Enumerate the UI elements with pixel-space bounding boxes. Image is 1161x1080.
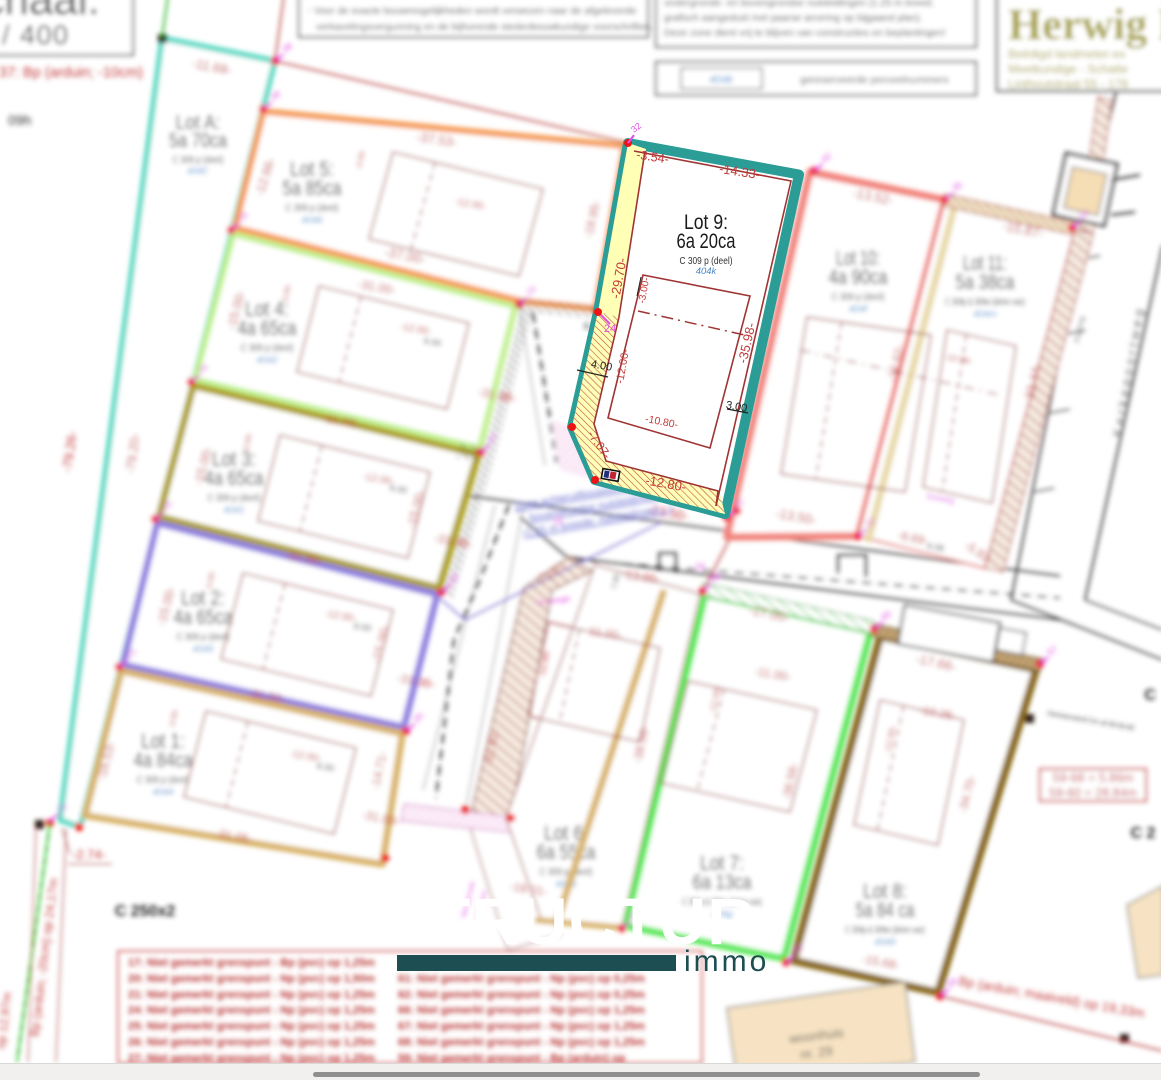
svg-text:37: Bp (arduin; -10cm): 37: Bp (arduin; -10cm) (0, 65, 143, 81)
svg-text:404k: 404k (696, 266, 718, 277)
svg-text:C 309 p (deel): C 309 p (deel) (286, 202, 339, 214)
svg-text:4042: 4042 (256, 355, 278, 366)
svg-text:4045: 4045 (192, 644, 214, 655)
svg-text:404k: 404k (709, 74, 733, 86)
svg-text:5a 84 ca: 5a 84 ca (856, 898, 915, 922)
svg-text:4a 65ca: 4a 65ca (205, 466, 264, 490)
svg-text:61: Niet gemerkt grenspunt - N: 61: Niet gemerkt grenspunt - Np (pvc) op… (398, 973, 645, 985)
svg-text:68: Niet gemerkt grenspunt - N: 68: Niet gemerkt grenspunt - Np (pvc) op… (398, 1037, 645, 1049)
svg-text:Linthoutstraat 55 - 178: Linthoutstraat 55 - 178 (1008, 77, 1128, 91)
svg-text:6a 20ca: 6a 20ca (677, 229, 736, 253)
svg-text:09h: 09h (8, 112, 31, 128)
svg-text:C 2: C 2 (1131, 825, 1156, 842)
svg-text:gereserveerde perceelnummers: gereserveerde perceelnummers (800, 74, 949, 86)
svg-text:24: 24 (604, 323, 616, 335)
svg-text:Deze zone dient vrij te blijve: Deze zone dient vrij te blijven van cons… (664, 28, 946, 39)
svg-text:C 309 p (deel): C 309 p (deel) (540, 866, 593, 878)
svg-text:4049: 4049 (874, 937, 896, 948)
svg-text:4040: 4040 (187, 166, 207, 176)
svg-text:C 309 p (deel): C 309 p (deel) (173, 155, 224, 166)
svg-text:immo: immo (684, 945, 769, 978)
svg-text:5a 70ca: 5a 70ca (169, 130, 228, 152)
svg-text:4a 90ca: 4a 90ca (829, 265, 888, 289)
svg-text:4044: 4044 (152, 787, 173, 798)
svg-text:- Voor de exacte bouwmogelijkh: - Voor de exacte bouwmogelijkheden wordt… (308, 6, 637, 17)
svg-text:5a 85ca: 5a 85ca (283, 176, 342, 200)
svg-text:62: Niet gemerkt grenspunt - N: 62: Niet gemerkt grenspunt - Np (pvc) op… (398, 989, 645, 1001)
svg-text:4041: 4041 (223, 505, 244, 516)
svg-text:59: Niet gemerkt grenspunt - B: 59: Niet gemerkt grenspunt - Bp (arduin)… (398, 1052, 626, 1064)
svg-text:21: Niet gemerkt grenspunt - N: 21: Niet gemerkt grenspunt - Np (pvc) op… (128, 989, 375, 1001)
svg-text:59-60 = 28.84m: 59-60 = 28.84m (1049, 786, 1137, 800)
svg-text:4046: 4046 (301, 215, 323, 226)
svg-text:4a 65ca: 4a 65ca (238, 316, 297, 340)
svg-text:C: C (1144, 687, 1156, 704)
svg-text:20: Niet gemerkt grenspunt - N: 20: Niet gemerkt grenspunt - Np (pvc) op… (128, 973, 375, 985)
svg-text:Herwig F: Herwig F (1008, 0, 1161, 49)
svg-text:C 309p & 309w (delen van): C 309p & 309w (delen van) (945, 296, 1025, 308)
svg-text:C 309p & 309w (delen van): C 309p & 309w (delen van) (845, 924, 925, 936)
svg-text:23: 23 (553, 516, 563, 526)
svg-text:Meetkundige - Schatte: Meetkundige - Schatte (1008, 62, 1128, 76)
svg-text:ondergronde- en bovengrondse n: ondergronde- en bovengrondse nutsleiding… (664, 0, 934, 9)
svg-text:26: Niet gemerkt grenspunt - N: 26: Niet gemerkt grenspunt - Np (pvc) op… (128, 1037, 375, 1049)
svg-text:C 309 p (deel): C 309 p (deel) (208, 492, 261, 504)
svg-text:C 250x2: C 250x2 (115, 903, 176, 920)
svg-text:17: Niet gemerkt grenspunt - B: 17: Niet gemerkt grenspunt - Bp (pvc) op… (128, 957, 375, 969)
svg-text:Beëdigd landmeter-ex: Beëdigd landmeter-ex (1008, 47, 1125, 61)
svg-text:24: Niet gemerkt grenspunt - N: 24: Niet gemerkt grenspunt - Np (pvc) op… (128, 1005, 375, 1017)
svg-text:66: Niet gemerkt grenspunt - N: 66: Niet gemerkt grenspunt - Np (pvc) op… (398, 1005, 645, 1017)
svg-text:59-68 = 5.86m: 59-68 = 5.86m (1053, 771, 1134, 785)
svg-text:404f: 404f (849, 304, 869, 315)
svg-text:6a 55ca: 6a 55ca (537, 840, 596, 864)
svg-text:grafisch aangeduid met paarse: grafisch aangeduid met paarse arcering o… (664, 13, 923, 24)
svg-text:C 309 p (deel): C 309 p (deel) (137, 774, 190, 786)
svg-text:27: Niet gemerkt grenspunt - N: 27: Niet gemerkt grenspunt - Np (pvc) op… (128, 1052, 375, 1064)
svg-text:C 309 p (deel): C 309 p (deel) (177, 631, 230, 643)
svg-text:67: Niet gemerkt grenspunt - N: 67: Niet gemerkt grenspunt - Np (pvc) op… (398, 1021, 645, 1033)
svg-text:C 309 p (deel): C 309 p (deel) (241, 342, 294, 354)
svg-text:/ 400: / 400 (2, 20, 70, 50)
svg-text:404m: 404m (973, 309, 997, 320)
svg-text:verkavelingsvergunning en de b: verkavelingsvergunning en de bijhorende … (316, 22, 653, 33)
svg-text:24: 24 (695, 561, 705, 571)
svg-text:5a 38ca: 5a 38ca (956, 270, 1015, 294)
svg-text:4a 84ca: 4a 84ca (134, 748, 193, 772)
svg-text:-2.74-: -2.74- (72, 847, 106, 862)
svg-text:C 309 p (deel): C 309 p (deel) (832, 291, 885, 303)
svg-text:25: Niet gemerkt grenspunt - N: 25: Niet gemerkt grenspunt - Np (pvc) op… (128, 1021, 375, 1033)
svg-text:4a 65ca: 4a 65ca (174, 605, 233, 629)
